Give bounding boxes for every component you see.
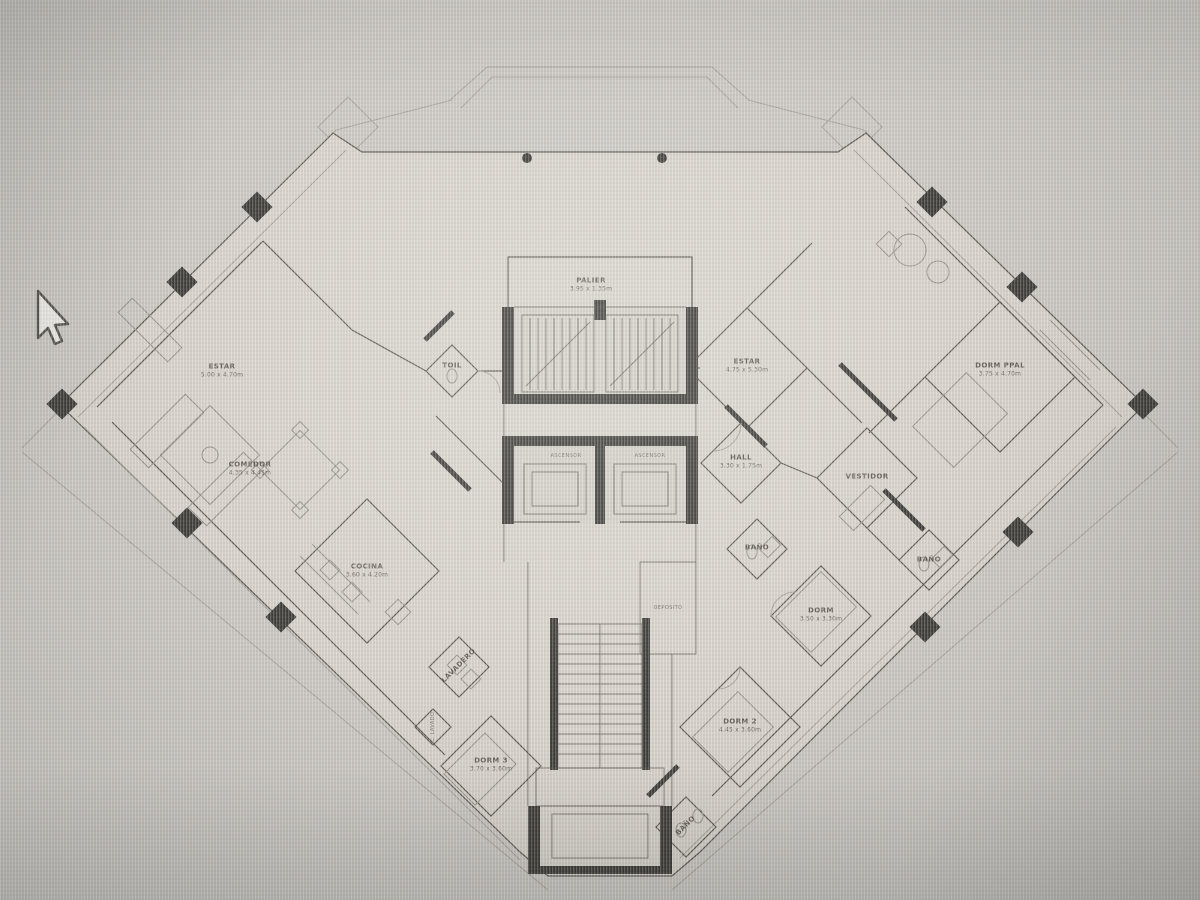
floor-plan-drawing [0,0,1200,900]
screen-photo-of-floor-plan: ESTAR 5.00 x 4.70m COMEDOR 4.35 x 4.45m … [0,0,1200,900]
mouse-cursor [38,291,68,344]
